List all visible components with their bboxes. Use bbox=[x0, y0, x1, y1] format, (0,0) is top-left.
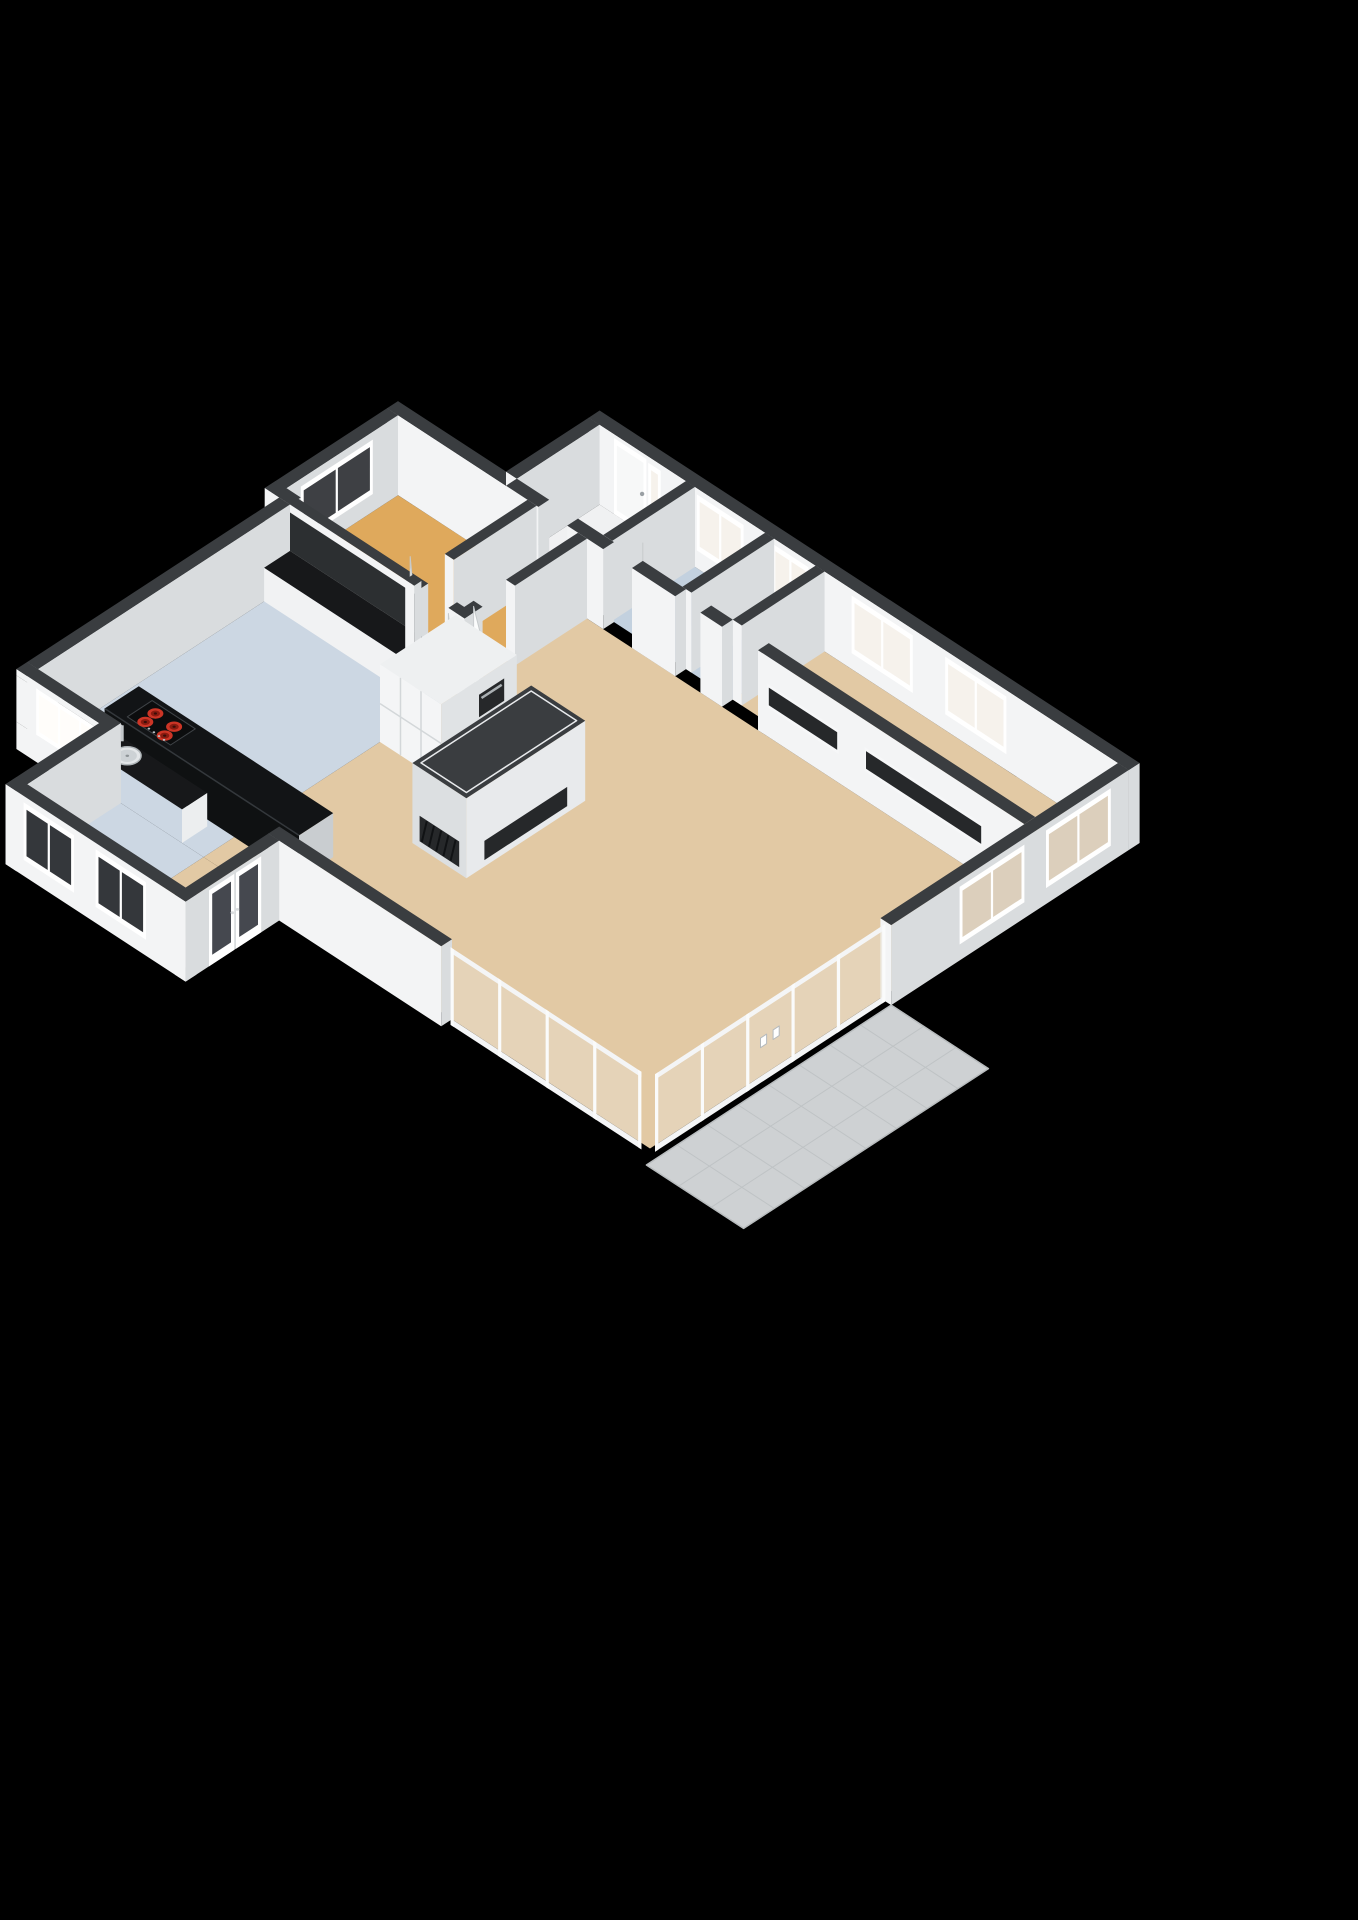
glass-wall-post bbox=[701, 1042, 704, 1122]
floor-plan-screenshot bbox=[0, 0, 1358, 1920]
cooktop-burner-center bbox=[173, 726, 176, 728]
wall-face bbox=[675, 589, 686, 676]
glass-wall-post bbox=[546, 1009, 549, 1089]
french-door-glass bbox=[239, 864, 258, 937]
glass-wall-post bbox=[655, 1072, 658, 1152]
wall-face bbox=[603, 542, 614, 629]
french-door-glass bbox=[212, 882, 231, 955]
floor-plan-3d bbox=[0, 0, 1358, 1920]
cooktop-burner-center bbox=[163, 735, 166, 737]
wall-face bbox=[700, 613, 722, 707]
glass-wall-post bbox=[746, 1013, 749, 1093]
glass-wall-post bbox=[638, 1070, 641, 1150]
cooktop-knob bbox=[158, 735, 161, 737]
wall-face bbox=[441, 939, 452, 1026]
french-door-handle bbox=[231, 911, 235, 914]
wall-face bbox=[175, 895, 186, 982]
glass-wall-post bbox=[792, 983, 795, 1063]
french-door-handle bbox=[236, 908, 240, 911]
wall-face bbox=[1129, 763, 1140, 850]
glass-wall-post bbox=[882, 924, 885, 1004]
cooktop-knob bbox=[148, 728, 151, 730]
wall-face bbox=[733, 620, 742, 706]
sink-drain bbox=[126, 755, 130, 757]
glass-wall-post bbox=[451, 947, 454, 1027]
glass-wall-post bbox=[498, 978, 501, 1058]
cooktop-burner-center bbox=[154, 712, 157, 714]
cooktop-knob bbox=[163, 739, 166, 741]
wall-face bbox=[722, 620, 733, 707]
entry-door-handle bbox=[640, 492, 644, 496]
glass-wall-post bbox=[837, 953, 840, 1033]
cooktop-burner-center bbox=[144, 721, 147, 723]
glass-wall-post bbox=[593, 1040, 596, 1120]
cooktop-knob bbox=[153, 731, 156, 733]
hall-wall bbox=[700, 606, 732, 707]
